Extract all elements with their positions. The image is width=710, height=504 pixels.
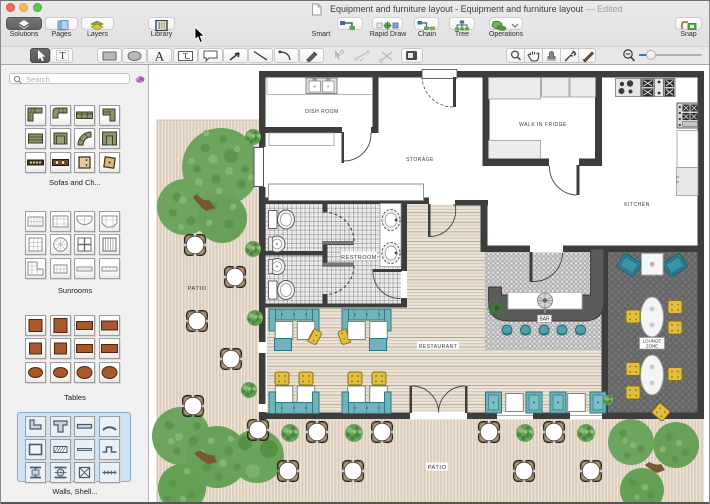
svg-text:KITCHEN: KITCHEN bbox=[624, 202, 649, 208]
svg-text:RESTAURANT: RESTAURANT bbox=[419, 344, 458, 350]
svg-text:DISH ROOM: DISH ROOM bbox=[305, 109, 338, 115]
svg-text:PATIO: PATIO bbox=[187, 286, 206, 292]
svg-text:BAR: BAR bbox=[539, 317, 550, 323]
svg-text:STORAGE: STORAGE bbox=[406, 157, 434, 163]
svg-text:A: A bbox=[155, 49, 165, 62]
svg-text:PATIO: PATIO bbox=[427, 465, 446, 471]
svg-text:ZONE: ZONE bbox=[646, 344, 658, 349]
svg-text:WALK IN FRIDGE: WALK IN FRIDGE bbox=[519, 122, 567, 128]
svg-text:RESTROOM: RESTROOM bbox=[341, 255, 377, 261]
svg-text:T: T bbox=[59, 51, 65, 62]
svg-text:T: T bbox=[183, 52, 188, 61]
